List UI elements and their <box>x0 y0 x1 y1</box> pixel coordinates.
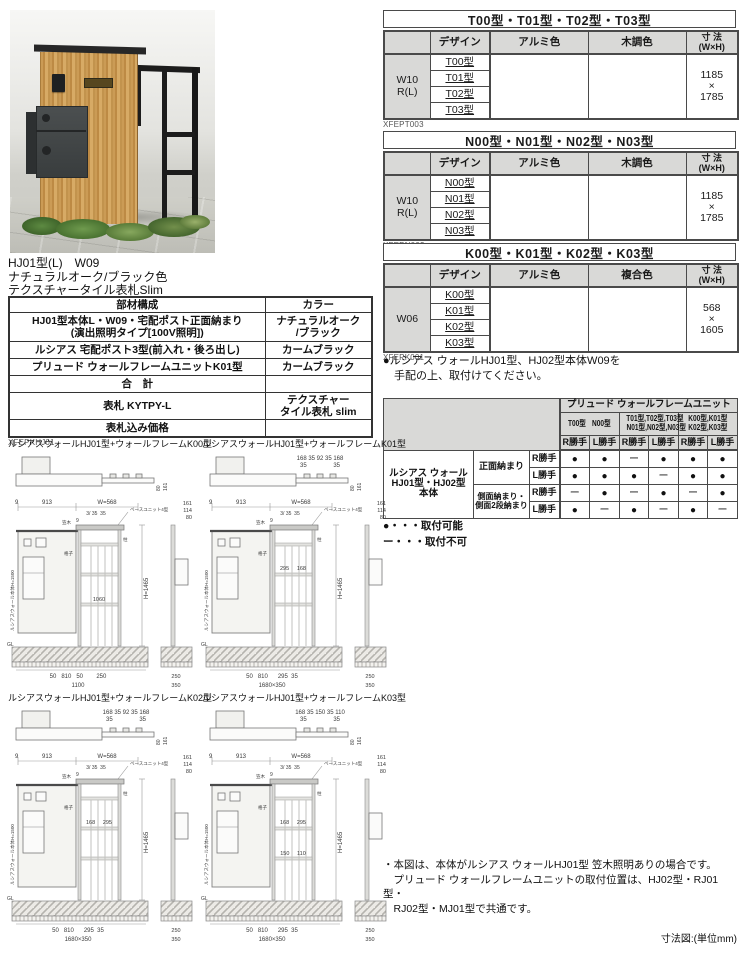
parts-header: 部材構成 <box>9 297 265 313</box>
model-group-2: T01型,T02型,T03型 N01型,N02型,N03型 <box>620 413 679 436</box>
side-mailbox-outline <box>175 559 188 585</box>
koushi-label: 格子 <box>64 804 73 811</box>
frame-unit-header: プリュード ウォールフレームユニット <box>560 399 738 413</box>
dim-label: 350 <box>365 937 374 943</box>
hashira-label: 柱 <box>123 790 128 797</box>
foundation-base <box>206 662 342 667</box>
height-label: H=1465 <box>144 577 150 599</box>
dim-label: 161 <box>377 501 386 507</box>
unit-note: 寸法図:(単位mm) <box>383 930 737 945</box>
kasagi-label: 笠木 <box>256 773 265 780</box>
dim-label: W=568 <box>97 754 117 760</box>
kasagi-label: 笠木 <box>256 519 265 526</box>
hashira-label: 柱 <box>317 536 322 543</box>
side-mount-label: 側面納まり・ 側面2段納まり <box>474 485 530 519</box>
product-color: ナチュラルオーク/ブラック色 <box>8 271 167 285</box>
base-unit-label: ベースユニット4型 <box>130 506 169 512</box>
hand-header: R勝手 <box>560 436 590 451</box>
dim-label: 168 295 <box>86 820 112 826</box>
wood-swatch-area <box>588 54 686 119</box>
size-header: 寸 法 (W×H) <box>686 152 738 175</box>
color-cell: カームブラック <box>265 342 372 359</box>
front-mount-label: 正面納まり <box>474 450 530 485</box>
parts-table-wrap: 部材構成 カラー HJ01型本体L・W09・宅配ポスト正面納まり (演出照明タイ… <box>8 296 373 447</box>
compat-mark: ● <box>560 468 590 485</box>
dim-label: 50 810 295 35 <box>52 928 104 934</box>
model-group-3: K00型,K01型 K02型,K03型 <box>679 413 738 436</box>
table-code: XFEPT003 <box>383 120 739 129</box>
compat-mark: ● <box>679 450 708 468</box>
foundation-hatch <box>206 901 342 916</box>
spec-table-t-wrap: デザイン アルミ色 木調色 寸 法 (W×H) W10 R(L) T00型 11… <box>383 30 739 129</box>
design-cell: N00型 <box>430 175 490 192</box>
dim-label: 9 <box>270 518 273 524</box>
wood-header: 木調色 <box>588 152 686 175</box>
hand-header: R勝手 <box>679 436 708 451</box>
design-cell: K03型 <box>430 336 490 353</box>
frame-cap <box>76 779 124 784</box>
design-header: デザイン <box>430 264 490 287</box>
design-cell: N01型 <box>430 192 490 208</box>
hashira-label: 柱 <box>317 790 322 797</box>
dim-label: 80 <box>186 515 192 521</box>
front-view: 9 913 W=568 3/ 35 35 9 ベースユニット4型 ルシアスウォー… <box>7 754 169 943</box>
alumi-swatch-area <box>490 287 588 352</box>
height-label: H=1465 <box>338 831 344 853</box>
hand-cell: L勝手 <box>530 468 560 485</box>
top-view: 168 35 92 35 168 35 35 80 161 <box>16 710 169 745</box>
drawing-canvas: 168 35 150 35 110 35 35 80 161 9 913 <box>200 705 390 943</box>
foundation-base <box>206 916 342 921</box>
spec-title-k: K00型・K01型・K02型・K03型 <box>383 243 736 261</box>
stub-header <box>384 152 430 175</box>
design-cell: T03型 <box>430 103 490 120</box>
design-cell: T01型 <box>430 71 490 87</box>
koushi-label: 格子 <box>258 804 267 811</box>
dim-label: W=568 <box>291 500 311 506</box>
foundation-base <box>161 662 192 667</box>
design-cell: K00型 <box>430 287 490 304</box>
hand-cell: R勝手 <box>530 450 560 468</box>
compat-mark: ● <box>649 450 679 468</box>
dim-label: 1060 <box>93 597 105 603</box>
dim-label: 50 810 50 250 <box>50 674 107 680</box>
drawing-title: ルシアスウォールHJ01型+ウォールフレームK00型 <box>8 437 200 450</box>
stub-header <box>384 31 430 54</box>
compat-mark: ● <box>708 468 738 485</box>
dim-label: 3/ 35 35 <box>86 765 106 771</box>
dim-label: 250 <box>171 928 180 934</box>
compat-mark: ● <box>679 502 708 519</box>
dim-label: 161 <box>183 755 192 761</box>
nameplate <box>84 78 113 88</box>
mailbox-outline <box>217 557 238 599</box>
foundation-base <box>12 662 148 667</box>
size-header: 寸 法 (W×H) <box>686 264 738 287</box>
height-label: H=1465 <box>144 831 150 853</box>
compat-mark: ー <box>560 485 590 502</box>
side-mailbox-outline <box>175 813 188 839</box>
compat-mark: ● <box>590 468 620 485</box>
product-model: HJ01型(L) W09 <box>8 257 167 271</box>
dim-label: 150 110 <box>280 851 306 857</box>
dim-label: 250 <box>365 928 374 934</box>
hand-cell: R勝手 <box>530 485 560 502</box>
alumi-header: アルミ色 <box>490 264 588 287</box>
design-cell: T02型 <box>430 87 490 103</box>
dim-label: 913 <box>42 500 53 506</box>
dimension-drawing: ルシアスウォールHJ01型+ウォールフレームK02型 168 35 92 35 … <box>6 690 200 944</box>
wall-height-label: ルシアスウォール本体H=1500 <box>9 824 16 885</box>
mailbox-outline <box>23 557 44 599</box>
compat-mark: ● <box>590 450 620 468</box>
foundation-base <box>355 662 386 667</box>
foundation-hatch <box>12 901 148 916</box>
compat-table-wrap: プリュード ウォールフレームユニット T00型 N00型 T01型,T02型,T… <box>383 398 738 519</box>
compat-table: プリュード ウォールフレームユニット T00型 N00型 T01型,T02型,T… <box>383 398 738 519</box>
dim-label: 161 <box>377 755 386 761</box>
compat-mark: ● <box>560 450 590 468</box>
design-cell: K02型 <box>430 320 490 336</box>
hand-cell: L勝手 <box>530 502 560 519</box>
color-cell: カームブラック <box>265 359 372 376</box>
dim-label: 913 <box>236 500 247 506</box>
front-view: 9 913 W=568 3/ 35 35 9 ベースユニット4型 ルシアスウォー… <box>201 754 363 943</box>
dim-label: 1680×350 <box>259 937 287 943</box>
side-view: 161 114 80 250 350 <box>161 501 192 689</box>
dim-label: 50 810 295 35 <box>246 674 298 680</box>
alumi-header: アルミ色 <box>490 31 588 54</box>
price-cell: 表札込み価格 <box>9 420 265 438</box>
spec-title-n: N00型・N01型・N02型・N03型 <box>383 131 736 149</box>
plant <box>56 219 110 239</box>
dim-label: 3/ 35 35 <box>86 511 106 517</box>
compat-mark: ● <box>649 485 679 502</box>
dim-label: 9 <box>15 500 19 506</box>
hand-header: L勝手 <box>649 436 679 451</box>
color-cell <box>265 420 372 438</box>
compat-mark: ● <box>560 502 590 519</box>
dim-label: 35 35 <box>106 717 147 723</box>
dim-label: 168 35 92 35 168 <box>297 456 344 462</box>
compat-mark: ● <box>620 502 649 519</box>
compat-mark: ー <box>590 502 620 519</box>
hand-header: R勝手 <box>620 436 649 451</box>
product-photo <box>10 10 215 253</box>
side-view: 161 114 80 250 350 <box>355 755 386 943</box>
dim-label: 250 <box>365 674 374 680</box>
mailbox-outline <box>23 811 44 853</box>
spec-table-k: デザイン アルミ色 複合色 寸 法 (W×H) W06 K00型 568 × 1… <box>383 263 739 353</box>
foundation-base <box>355 916 386 921</box>
wall-height-label: ルシアスウォール本体H=1500 <box>203 570 210 631</box>
order-note: ●ルシアス ウォールHJ01型、HJ02型本体W09を 手配の上、取付けてくださ… <box>383 354 737 384</box>
color-cell: テクスチャー タイル表札 slim <box>265 393 372 420</box>
drawing-title: ルシアスウォールHJ01型+ウォールフレームK02型 <box>8 691 200 704</box>
design-cell: T00型 <box>430 54 490 71</box>
front-view: 9 913 W=568 3/ 35 35 9 ベースユニット4型 ルシアスウォー… <box>7 500 169 689</box>
dim-label: 80 <box>350 485 356 491</box>
dim-label: 114 <box>183 508 192 514</box>
part-cell: HJ01型本体L・W09・宅配ポスト正面納まり (演出照明タイプ[100V照明]… <box>9 313 265 342</box>
dim-label: 350 <box>365 683 374 689</box>
foundation-hatch <box>206 647 342 662</box>
dim-label: 913 <box>236 754 247 760</box>
plant <box>106 223 154 241</box>
dim-label: 35 35 <box>300 463 341 469</box>
koushi-label: 格子 <box>64 550 73 557</box>
mailbox-dial <box>42 146 51 155</box>
wood-header: 木調色 <box>588 31 686 54</box>
hand-header: L勝手 <box>708 436 738 451</box>
foundation-hatch <box>161 901 192 916</box>
dim-label: 1680×350 <box>259 683 287 689</box>
side-view: 161 114 80 250 350 <box>161 755 192 943</box>
dim-label: 1100 <box>72 683 86 689</box>
compat-mark: ー <box>679 485 708 502</box>
side-mailbox-outline <box>369 813 382 839</box>
compat-mark: ー <box>649 502 679 519</box>
kasagi-label: 笠木 <box>62 773 71 780</box>
dim-label: 913 <box>42 754 53 760</box>
dimension-drawing: ルシアスウォールHJ01型+ウォールフレームK00型 <box>6 436 200 690</box>
frame-cap <box>76 525 124 530</box>
plant <box>180 215 210 229</box>
foundation-hatch <box>355 647 386 662</box>
foundation-hatch <box>161 647 192 662</box>
total-cell: 合 計 <box>9 376 265 393</box>
compat-mark: ● <box>708 485 738 502</box>
dim-label: 9 <box>270 772 273 778</box>
spec-table-n: デザイン アルミ色 木調色 寸 法 (W×H) W10 R(L) N00型 11… <box>383 151 739 241</box>
intercom-unit <box>52 74 65 92</box>
hashira-label: 柱 <box>123 536 128 543</box>
top-view: 168 35 150 35 110 35 35 80 161 <box>210 710 363 745</box>
dim-label: 168 35 92 35 168 <box>103 710 150 716</box>
size-cell: 568 × 1605 <box>686 287 738 352</box>
wall-frame-lattice <box>136 66 200 224</box>
dim-label: 9 <box>76 518 79 524</box>
color-header: カラー <box>265 297 372 313</box>
dimension-drawing: ルシアスウォールHJ01型+ウォールフレームK03型 168 35 150 35… <box>200 690 394 944</box>
base-unit-label: ベースユニット4型 <box>130 760 169 766</box>
drawing-title: ルシアスウォールHJ01型+ウォールフレームK01型 <box>202 437 394 450</box>
wall-height-label: ルシアスウォール本体H=1500 <box>9 570 16 631</box>
mailbox-dial <box>42 114 50 122</box>
dim-label: 9 <box>209 754 213 760</box>
width-stub: W06 <box>384 287 430 352</box>
dim-label: W=568 <box>97 500 117 506</box>
part-cell: プリュード ウォールフレームユニットK01型 <box>9 359 265 376</box>
color-cell: ナチュラルオーク /ブラック <box>265 313 372 342</box>
spec-table-t: デザイン アルミ色 木調色 寸 法 (W×H) W10 R(L) T00型 11… <box>383 30 739 120</box>
base-unit-label: ベースユニット4型 <box>324 760 363 766</box>
compat-mark: ー <box>620 450 649 468</box>
alumi-swatch-area <box>490 54 588 119</box>
dim-label: 250 <box>171 674 180 680</box>
part-cell: ルシアス 宅配ポスト3型(前入れ・後ろ出し) <box>9 342 265 359</box>
dim-label: 161 <box>163 482 169 491</box>
design-header: デザイン <box>430 31 490 54</box>
footer-note: ・本図は、本体がルシアス ウォールHJ01型 笠木照明ありの場合です。 プリュー… <box>383 858 737 917</box>
width-stub: W10 R(L) <box>384 175 430 240</box>
dim-label: 80 <box>186 769 192 775</box>
nameplate-cell: 表札 KYTPY-L <box>9 393 265 420</box>
dim-label: 9 <box>209 500 213 506</box>
catalog-page: HJ01型(L) W09 ナチュラルオーク/ブラック色 テクスチャータイル表札S… <box>0 0 740 956</box>
color-cell <box>265 376 372 393</box>
design-header: デザイン <box>430 152 490 175</box>
size-cell: 1185 × 1785 <box>686 54 738 119</box>
dimension-drawings: ルシアスウォールHJ01型+ウォールフレームK00型 <box>6 436 394 944</box>
dim-label: 114 <box>183 762 192 768</box>
dim-label: 161 <box>183 501 192 507</box>
compat-mark: ー <box>649 468 679 485</box>
kasagi-label: 笠木 <box>62 519 71 526</box>
foundation-hatch <box>12 647 148 662</box>
spec-table-k-wrap: デザイン アルミ色 複合色 寸 法 (W×H) W06 K00型 568 × 1… <box>383 263 739 362</box>
parts-table: 部材構成 カラー HJ01型本体L・W09・宅配ポスト正面納まり (演出照明タイ… <box>8 296 373 438</box>
size-header: 寸 法 (W×H) <box>686 31 738 54</box>
dimension-drawing: ルシアスウォールHJ01型+ウォールフレームK01型 168 35 92 35 … <box>200 436 394 690</box>
dim-label: 80 <box>156 485 162 491</box>
dim-label: 161 <box>357 482 363 491</box>
stub-header <box>384 264 430 287</box>
foundation-base <box>161 916 192 921</box>
dim-label: W=568 <box>291 754 311 760</box>
dim-label: 295 168 <box>280 566 306 572</box>
dim-label: 3/ 35 35 <box>280 765 300 771</box>
compat-mark: ● <box>590 485 620 502</box>
dim-label: 3/ 35 35 <box>280 511 300 517</box>
side-mailbox-outline <box>369 559 382 585</box>
dim-label: 168 35 150 35 110 <box>295 710 345 716</box>
base-unit-label: ベースユニット4型 <box>324 506 363 512</box>
dim-label: 1680×350 <box>65 937 93 943</box>
mailbox-side <box>26 112 36 174</box>
design-cell: K01型 <box>430 304 490 320</box>
composite-header: 複合色 <box>588 264 686 287</box>
model-group-1: T00型 N00型 <box>560 413 620 436</box>
compat-mark: ● <box>679 468 708 485</box>
composite-swatch-area <box>588 287 686 352</box>
dim-label: 35 35 <box>300 717 341 723</box>
compat-mark: ● <box>620 468 649 485</box>
top-view: 168 35 92 35 168 35 35 80 161 <box>210 456 363 491</box>
dim-label: 80 <box>156 739 162 745</box>
dim-label: 80 <box>380 515 386 521</box>
drawing-canvas: 168 35 92 35 168 35 35 80 161 9 913 <box>6 705 196 943</box>
hand-header: L勝手 <box>590 436 620 451</box>
product-title-block: HJ01型(L) W09 ナチュラルオーク/ブラック色 テクスチャータイル表札S… <box>8 257 167 298</box>
side-view: 161 114 80 250 350 <box>355 501 386 689</box>
drawing-canvas: 168 35 92 35 168 35 35 80 161 9 913 <box>200 451 390 689</box>
front-view: 9 913 W=568 3/ 35 35 9 ベースユニット4型 ルシアスウォー… <box>201 500 363 689</box>
drawing-title: ルシアスウォールHJ01型+ウォールフレームK03型 <box>202 691 394 704</box>
foundation-base <box>12 916 148 921</box>
dim-label: 161 <box>357 736 363 745</box>
wall-height-label: ルシアスウォール本体H=1500 <box>203 824 210 885</box>
drawing-canvas: 80 161 9 913 W=568 3/ 35 35 9 ベースユニット4型 <box>6 451 196 689</box>
dim-label: 350 <box>171 937 180 943</box>
frame-cap <box>270 525 318 530</box>
compat-mark: ● <box>708 450 738 468</box>
blank-corner <box>384 399 560 451</box>
dim-label: 161 <box>163 736 169 745</box>
width-stub: W10 R(L) <box>384 54 430 119</box>
dim-label: 80 <box>350 739 356 745</box>
dim-label: 168 295 <box>280 820 306 826</box>
compat-mark: ー <box>708 502 738 519</box>
spec-title-t: T00型・T01型・T02型・T03型 <box>383 10 736 28</box>
dim-label: 50 810 295 35 <box>246 928 298 934</box>
spec-table-n-wrap: デザイン アルミ色 木調色 寸 法 (W×H) W10 R(L) N00型 11… <box>383 151 739 250</box>
dim-label: 9 <box>76 772 79 778</box>
foundation-hatch <box>355 901 386 916</box>
height-label: H=1465 <box>338 577 344 599</box>
dim-label: 114 <box>377 508 386 514</box>
dim-label: 114 <box>377 762 386 768</box>
mailbox-outline <box>217 811 238 853</box>
alumi-swatch-area <box>490 175 588 240</box>
compat-legend: ●・・・取付可能 ー・・・取付不可 <box>383 519 467 551</box>
design-cell: N02型 <box>430 208 490 224</box>
size-cell: 1185 × 1785 <box>686 175 738 240</box>
top-view: 80 161 <box>16 457 169 491</box>
dim-label: 9 <box>15 754 19 760</box>
design-cell: N03型 <box>430 224 490 241</box>
koushi-label: 格子 <box>258 550 267 557</box>
frame-cap <box>270 779 318 784</box>
wood-swatch-area <box>588 175 686 240</box>
compat-mark: ー <box>620 485 649 502</box>
dim-label: 80 <box>380 769 386 775</box>
alumi-header: アルミ色 <box>490 152 588 175</box>
dim-label: 350 <box>171 683 180 689</box>
body-stub: ルシアス ウォール HJ01型・HJ02型 本体 <box>384 450 474 519</box>
